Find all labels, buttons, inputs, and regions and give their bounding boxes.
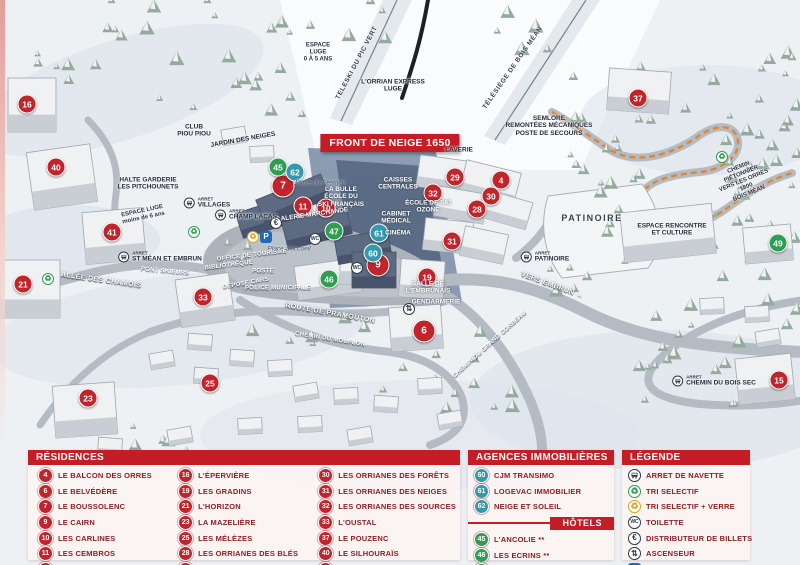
map-badge-11: 11 [294,197,313,216]
legend-badge-11: 11 [38,546,53,561]
legend-label: LE BALCON DES ORRES [58,471,152,480]
bus-stop-label: CHEMIN DU BOIS SEC [686,380,756,387]
recycle-yellow-icon: ♻ [247,231,259,243]
legend-label: LES ORRIANES DES FORÊTS [338,471,449,480]
map-badge-21: 21 [14,275,33,294]
map-badge-47: 47 [325,222,344,241]
map-label: SEMLORE REMONTÉES MÉCANIQUES POSTE DE SE… [505,115,592,137]
legend-item: ♻TRI SELECTIF + VERRE [622,499,750,515]
legend-badge-10: 10 [38,531,53,546]
map-label: ÉCOLE DE SKI OZONE [405,200,451,215]
map-badge-10: 10 [317,199,336,218]
legend-label: LES ORRIANES DES SOURCES [338,502,456,511]
legend-badge-60: 60 [474,468,489,483]
legend-label: LE BELVÉDÈRE [58,487,117,496]
map-label: ROUTE DE PRAMOUTON [284,302,375,326]
legend-item: 25LES MÉLÈZES [172,530,312,546]
legend-label: LES ORRIANES DES BLÉS [198,549,298,558]
map-badge-37: 37 [629,89,648,108]
map-label: LAVERIE [445,146,473,153]
legend-item: 29LES ORRIANES DES CIMES [172,562,312,565]
bus-stop-text: ARRETCHEMIN DU BOIS SEC [686,376,756,387]
map-label: L'ORRIAN EXPRESS LUGE [361,79,425,94]
legend-item: 45L'ANCOLIE ** [468,532,614,548]
legend-label: LES GRADINS [198,487,251,496]
legend-label: CJM TRANSIMO [494,471,554,480]
map-label: CHEMIN DU GRAND CORBEAU [452,310,528,380]
map-label: POLICE MUNICIPALE [245,286,311,293]
legend-badge-61: 61 [474,484,489,499]
legend-item: 10LES CARLINES [32,530,172,546]
map-label: Place d'accueil [267,245,310,252]
legend-label: LE POUZENC [338,534,388,543]
bus-stop-patinoire: ARRETPATINOIRE [521,252,569,263]
legend-item: 60CJM TRANSIMO [468,468,614,484]
legend-item: 9LE CAIRN [32,515,172,531]
bus-icon [184,198,195,209]
bus-stop-text: ARRETVILLAGES [198,198,231,209]
recycle-yellow-icon: ♻ [628,500,641,513]
map-badge-6: 6 [413,320,436,343]
legend-key: LÉGENDE ARRET DE NAVETTE♻TRI SELECTIF♻TR… [622,450,750,560]
legend-label: TRI SELECTIF + VERRE [646,502,735,511]
bus-stop-label: ST MÉAN ET EMBRUN [132,256,202,263]
legend-badge-28: 28 [178,546,193,561]
legend-label: L'OUSTAL [338,518,376,527]
map-label: HALTE GARDERIE LES PITCHOUNETS [117,177,178,192]
legend-badge-6: 6 [38,484,53,499]
legend-label: L'ANCOLIE ** [494,535,544,544]
map-badge-25: 25 [201,374,220,393]
map-label: VERS EMBRUN → [520,271,585,301]
bus-stop-st-m-an-et-embrun: ARRETST MÉAN ET EMBRUN [118,252,202,263]
bus-icon [521,252,532,263]
bus-stop-villages: ARRETVILLAGES [184,198,231,209]
legend-item: 62NEIGE ET SOLEIL [468,499,614,515]
bus-stop-label: VILLAGES [198,202,231,209]
residences-header: RÉSIDENCES [28,450,460,465]
legend-item: 33L'OUSTAL [312,515,456,531]
legend-label: L'HORIZON [198,502,241,511]
bus-stop-text: ARRETPATINOIRE [535,252,569,263]
map-label: CABINET MÉDICAL [381,211,411,226]
legend-item: ⇅ASCENSEUR [622,546,750,562]
recycle-green-icon: ♻ [42,273,54,285]
legend-item: 23LA MAZELIÈRE [172,515,312,531]
legend-panel: RÉSIDENCES 4LE BALCON DES ORRES6LE BELVÉ… [28,450,750,560]
legend-item: 21L'HORIZON [172,499,312,515]
map-badge-32: 32 [424,184,443,203]
map-badge-61: 61 [370,224,389,243]
legend-item: 32LES ORRIANES DES SOURCES [312,499,456,515]
hotels-header: HÔTELS [468,517,614,530]
legend-badge-46: 46 [474,548,489,563]
legend-agencies: AGENCES IMMOBILIÈRES 60CJM TRANSIMO61LOG… [468,450,614,560]
bus-stop-text: ARRETCHAMP LACAS [229,210,277,221]
legend-item: 31LES ORRIANES DES NEIGES [312,484,456,500]
wc-icon: WC [351,262,363,274]
map-badge-40: 40 [47,158,66,177]
legend-label: DISTRIBUTEUR DE BILLETS [646,534,752,543]
legend-label: LES CARLINES [58,534,115,543]
map-badge-41: 41 [103,223,122,242]
legend-label: LE CAIRN [58,518,95,527]
legend-label: TOILETTE [646,518,684,527]
legend-item: ARRET DE NAVETTE [622,468,750,484]
legend-badge-9: 9 [38,515,53,530]
legend-item: 15LES ÉCRINS [32,562,172,565]
bus-icon [118,252,129,263]
map-label: ESPACE LUGE moins de 6 ans [120,204,165,226]
euro-icon: € [628,532,641,545]
map-label: CHEMIN DU MOUFLON [294,331,365,349]
map-badge-62: 62 [286,163,305,182]
legend-item: 30LES ORRIANES DES FORÊTS [312,468,456,484]
legend-label: ARRET DE NAVETTE [646,471,724,480]
legend-badge-31: 31 [318,484,333,499]
legend-item: 4LE BALCON DES ORRES [32,468,172,484]
legend-item: 16L'ÉPERVIÈRE [172,468,312,484]
bus-stop-label: CHAMP LACAS [229,214,277,221]
legend-item: €DISTRIBUTEUR DE BILLETS [622,530,750,546]
legend-item: 37LE POUZENC [312,530,456,546]
bus-icon [628,469,641,482]
parking-icon: P [260,231,272,243]
legend-item: 7LE BOUSSOLENC [32,499,172,515]
map-label: GENDARMERIE [412,298,461,305]
legend-label: LOGEVAC IMMOBILIER [494,487,581,496]
legend-label: LA MAZELIÈRE [198,518,256,527]
legend-item: 41LE SUNNY SNOW [312,562,456,565]
map-label: ALLÉE DES CHAMOIS [60,271,141,290]
map-label: Place du Festival [295,179,345,186]
recycle-green-icon: ♻ [716,151,728,163]
legend-item: 28LES ORRIANES DES BLÉS [172,546,312,562]
legend-item: 46LES ECRINS ** [468,547,614,563]
legend-badge-7: 7 [38,499,53,514]
recycle-green-icon: ♻ [628,485,641,498]
map-label: ESPACE LUGE 0 À 5 ANS [304,43,332,64]
legend-item: 40LE SILHOURAÏS [312,546,456,562]
legend-label: NEIGE ET SOLEIL [494,502,561,511]
map-badge-31: 31 [443,232,462,251]
legende-header: LÉGENDE [622,450,750,465]
elevator-icon: ⇅ [403,303,415,315]
recycle-green-icon: ♻ [188,226,200,238]
bus-stop-text: ARRETST MÉAN ET EMBRUN [132,252,202,263]
legend-label: LE SILHOURAÏS [338,549,399,558]
map-badge-15: 15 [770,371,789,390]
map-label: OFFICE DE TOURISME [217,248,288,263]
front-de-neige-banner: FRONT DE NEIGE 1650 [320,134,459,152]
residences-column: 16L'ÉPERVIÈRE19LES GRADINS21L'HORIZON23L… [172,468,312,565]
legend-residences: RÉSIDENCES 4LE BALCON DES ORRES6LE BELVÉ… [28,450,460,560]
legend-label: TRI SELECTIF [646,487,699,496]
map-badge-46: 46 [320,270,339,289]
legend-badge-40: 40 [318,546,333,561]
resort-map: FRONT DE NEIGE 1650 16402141332325153771… [0,0,800,565]
bus-icon [672,376,683,387]
legend-item: 6LE BELVÉDÈRE [32,484,172,500]
legend-badge-30: 30 [318,468,333,483]
map-badge-23: 23 [79,389,98,408]
map-badge-29: 29 [446,168,465,187]
legend-item: WCTOILETTE [622,515,750,531]
legend-badge-32: 32 [318,499,333,514]
map-label: TÉLÉSIÈGE DE BOIS MÉAN [481,25,544,111]
legend-badge-23: 23 [178,515,193,530]
legend-label: L'ÉPERVIÈRE [198,471,249,480]
residences-column: 30LES ORRIANES DES FORÊTS31LES ORRIANES … [312,468,456,565]
legend-badge-16: 16 [178,468,193,483]
map-label: PONT SKIEURS [140,266,189,277]
map-label: CLUB PIOU PIOU [177,124,211,139]
map-label: JARDIN DES NEIGES [210,131,276,150]
map-label: ESPACE RENCONTRE ET CULTURE [637,223,706,238]
map-badge-33: 33 [194,288,213,307]
map-label: DÉPOSE CARS [222,277,269,292]
hotels-title: HÔTELS [550,517,614,530]
map-label: PATINOIRE [561,213,622,223]
legend-label: LE BOUSSOLENC [58,502,125,511]
map-badge-28: 28 [468,200,487,219]
legend-badge-33: 33 [318,515,333,530]
map-label: TELESKI DU PIC VERT [334,25,379,101]
legend-badge-37: 37 [318,531,333,546]
residences-column: 4LE BALCON DES ORRES6LE BELVÉDÈRE7LE BOU… [32,468,172,565]
legend-badge-62: 62 [474,499,489,514]
wc-icon: WC [309,233,321,245]
legend-label: ASCENSEUR [646,549,695,558]
legend-item: 61LOGEVAC IMMOBILIER [468,484,614,500]
legend-label: LES CEMBROS [58,549,115,558]
map-badge-49: 49 [769,234,788,253]
elevator-icon: ⇅ [628,547,641,560]
map-label: POSTE [252,269,274,276]
map-label: BIBLIOTHÈQUE [204,260,253,273]
bus-icon [215,210,226,221]
wc-icon: WC [628,516,641,529]
legend-item: PPARKING PAYANT ET LIMITÉ [622,562,750,565]
legend-item: 11LES CEMBROS [32,546,172,562]
legend-badge-4: 4 [38,468,53,483]
legend-badge-45: 45 [474,532,489,547]
map-badge-19: 19 [418,268,437,287]
bus-stop-label: PATINOIRE [535,256,569,263]
agencies-header: AGENCES IMMOBILIÈRES [468,450,614,465]
legend-badge-21: 21 [178,499,193,514]
map-badge-45: 45 [269,158,288,177]
map-badge-16: 16 [18,95,37,114]
legend-label: LES ORRIANES DES NEIGES [338,487,447,496]
legend-label: LES ECRINS ** [494,551,550,560]
legend-badge-19: 19 [178,484,193,499]
legend-item: ♻TRI SELECTIF [622,484,750,500]
legend-item: 19LES GRADINS [172,484,312,500]
legend-label: LES MÉLÈZES [198,534,252,543]
bus-stop-champ-lacas: ARRETCHAMP LACAS [215,210,277,221]
map-label: CINÉMA [385,229,411,236]
bus-stop-chemin-du-bois-sec: ARRETCHEMIN DU BOIS SEC [672,376,756,387]
map-label: CAISSES CENTRALES [378,177,418,192]
hotels-divider-line [468,522,550,524]
map-badge-60: 60 [364,244,383,263]
legend-badge-25: 25 [178,531,193,546]
